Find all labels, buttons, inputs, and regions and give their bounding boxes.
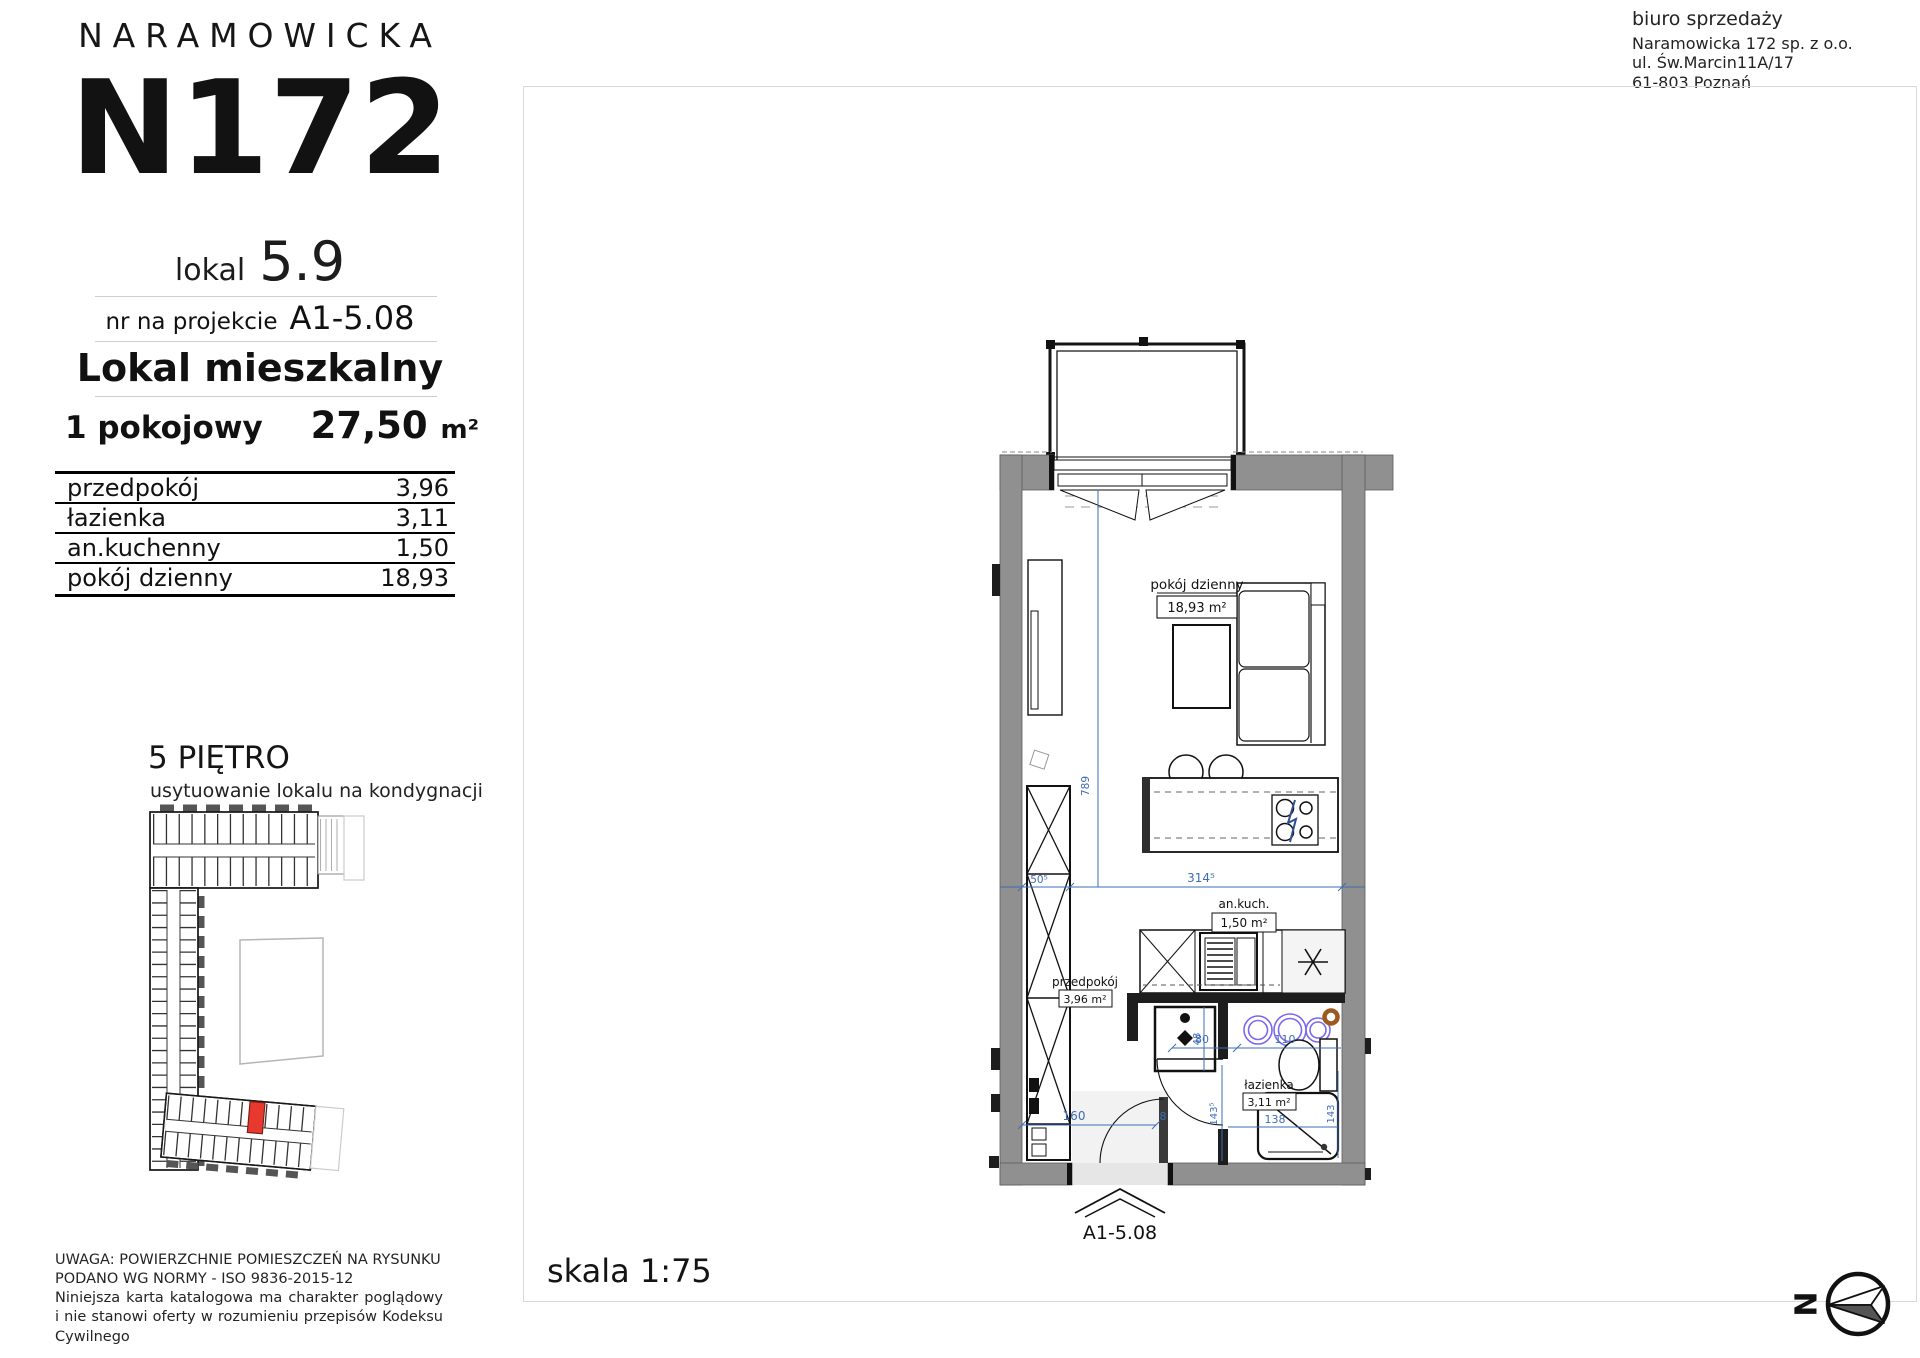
room-areas-table: przedpokój 3,96 łazienka 3,11 an.kuchenn…: [55, 471, 455, 597]
divider: [95, 296, 437, 297]
bathroom-label: łazienka: [1244, 1078, 1293, 1092]
entrance-marker: A1-5.08: [1075, 1189, 1165, 1244]
entrance-code-label: A1-5.08: [1083, 1222, 1157, 1244]
fridge: [1200, 933, 1257, 990]
room-area: 3,96: [396, 474, 455, 502]
room-area: 3,11: [396, 504, 455, 532]
sofa: [1237, 583, 1325, 745]
north-compass: N: [1785, 1252, 1915, 1356]
kitchen-counter: [1140, 930, 1345, 993]
table-row: przedpokój 3,96: [55, 474, 455, 504]
total-area: 27,50 m²: [311, 404, 479, 447]
lokal-label: lokal: [175, 253, 245, 288]
drain-symbol: [1325, 1011, 1338, 1024]
sales-office-company: Naramowicka 172 sp. z o.o.: [1632, 34, 1853, 54]
note-line: PODANO WG NORMY - ISO 9836-2015-12: [55, 1270, 443, 1289]
room-area: 18,93: [380, 564, 455, 594]
room-area: 1,50: [396, 534, 455, 562]
hall-area: 3,96 m²: [1063, 993, 1106, 1006]
compass-north-letter: N: [1790, 1291, 1825, 1316]
project-line: nr na projekcie A1-5.08: [0, 299, 520, 337]
door-jamb: [1067, 1163, 1072, 1185]
dim-closet-width: 50⁵: [1030, 874, 1048, 886]
kitchen-label: an.kuch.: [1219, 897, 1270, 911]
living-room-area: 18,93 m²: [1167, 601, 1226, 616]
floor-title: 5 PIĘTRO: [148, 740, 290, 776]
coffee-table: [1173, 625, 1230, 708]
room-name: przedpokój: [55, 474, 199, 502]
balcony-window: [1049, 455, 1236, 520]
unit-type: Lokal mieszkalny: [0, 346, 520, 390]
brand-name: NARAMOWICKA: [0, 16, 520, 55]
hall-label: przedpokój: [1052, 975, 1118, 989]
dim-shaft: 48: [1192, 1033, 1203, 1046]
total-area-unit: m²: [441, 415, 479, 445]
room-name: pokój dzienny: [55, 564, 233, 594]
sales-office-title: biuro sprzedaży: [1632, 8, 1853, 32]
room-name: an.kuchenny: [55, 534, 221, 562]
sales-office-street: ul. Św.Marcin11A/17: [1632, 53, 1853, 73]
keyplan-courtyard: [240, 938, 323, 1064]
wardrobe-closet: [1027, 560, 1070, 1160]
dim-bath-bottom: 138: [1265, 1113, 1286, 1126]
keyplan-top-wing: [150, 808, 364, 888]
rooms-count: 1 pokojowy: [65, 410, 263, 446]
divider: [95, 341, 437, 342]
table-row: pokój dzienny 18,93: [55, 564, 455, 594]
entrance-floor: [1072, 1163, 1168, 1185]
door-jamb: [1168, 1163, 1173, 1185]
brand-logo: N172: [0, 54, 520, 204]
window-jamb: [1231, 455, 1236, 490]
table-row: an.kuchenny 1,50: [55, 534, 455, 564]
total-area-value: 27,50: [311, 404, 428, 447]
lokal-number: 5.9: [259, 230, 345, 293]
keyplan-bottom-wing: [160, 1093, 343, 1178]
balcony: [1046, 337, 1245, 461]
note-paragraph: Niniejsza karta katalogowa ma charakter …: [55, 1289, 443, 1346]
kitchen-area: 1,50 m²: [1220, 916, 1267, 930]
divider: [95, 396, 437, 397]
dim-hall-depth: 143⁵: [1209, 1102, 1220, 1125]
window-jamb: [1049, 455, 1054, 490]
kitchen-island: [1143, 778, 1338, 852]
floor-plan-drawing: 50⁵ 314⁵ 789 160 8 80 110 48 143⁵ 143 13…: [523, 86, 1917, 1302]
dim-bath-depth: 143: [1326, 1104, 1337, 1123]
building-key-plan: [120, 800, 470, 1210]
room-name: łazienka: [55, 504, 166, 532]
dim-total-width: 314⁵: [1187, 871, 1215, 885]
dim-door-width: 8: [1160, 1110, 1167, 1123]
note-line: UWAGA: POWIERZCHNIE POMIESZCZEŃ NA RYSUN…: [55, 1251, 443, 1270]
dim-hall-width: 160: [1063, 1109, 1086, 1123]
unit-summary: 1 pokojowy 27,50 m²: [65, 404, 479, 447]
dim-room-depth: 789: [1080, 776, 1092, 796]
disclaimer-notes: UWAGA: POWIERZCHNIE POMIESZCZEŃ NA RYSUN…: [55, 1251, 443, 1347]
table-row: łazienka 3,11: [55, 504, 455, 534]
cooktop: [1272, 795, 1318, 845]
project-number: A1-5.08: [289, 299, 414, 337]
lokal-line: lokal 5.9: [0, 230, 520, 293]
dim-bath-width: 110: [1275, 1033, 1296, 1046]
living-room-label: pokój dzienny: [1150, 577, 1243, 593]
bathroom-area: 3,11 m²: [1247, 1096, 1290, 1109]
sales-office-block: biuro sprzedaży Naramowicka 172 sp. z o.…: [1632, 8, 1853, 93]
highlighted-unit-marker: [247, 1102, 265, 1134]
floor-subtitle: usytuowanie lokalu na kondygnacji: [150, 780, 483, 802]
project-label: nr na projekcie: [105, 309, 277, 335]
